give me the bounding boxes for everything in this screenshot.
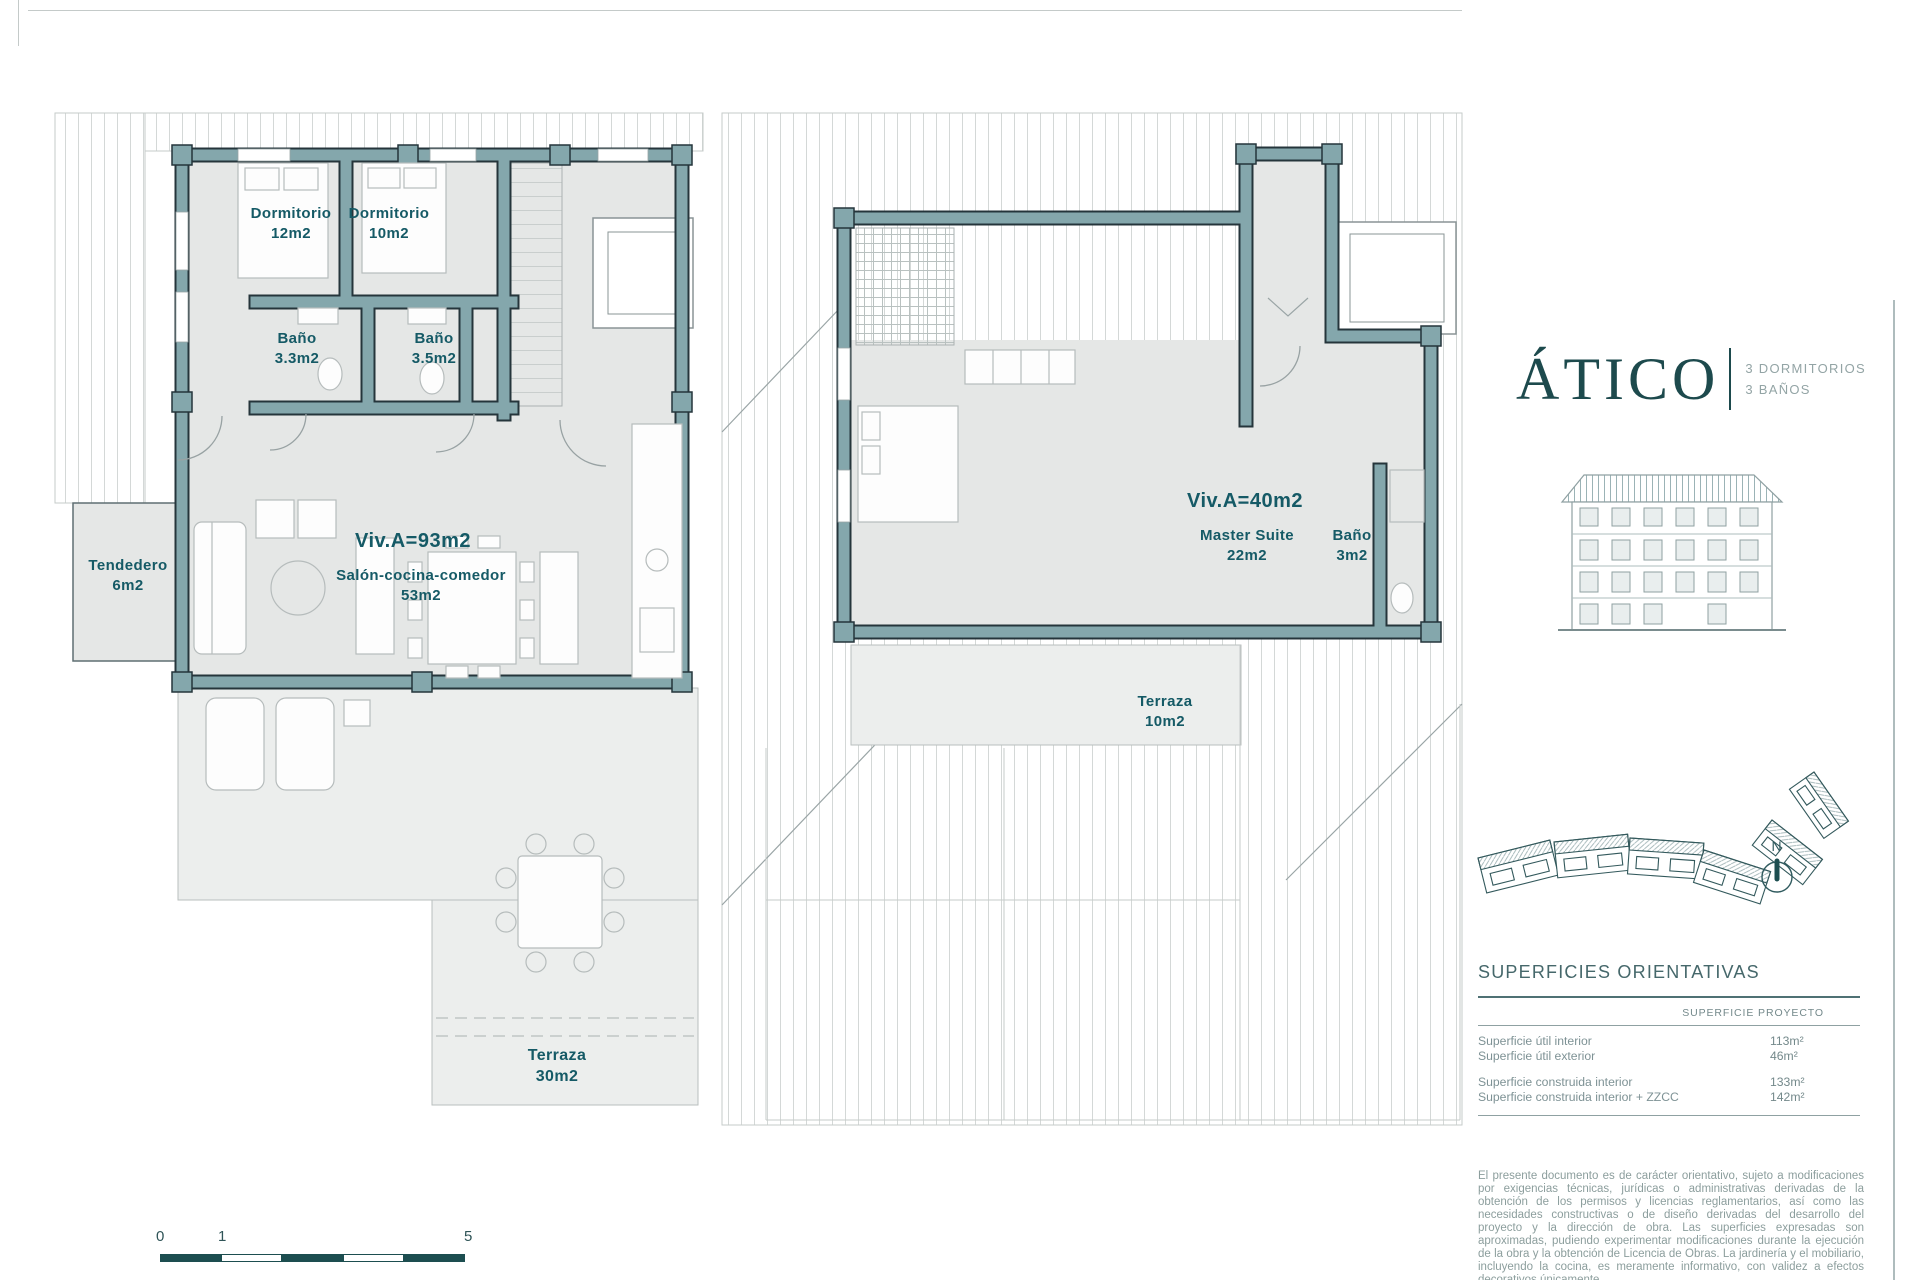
room-label-dormitorio-1: Dormitorio 12m2 (251, 204, 332, 243)
room-label-salon: Salón-cocina-comedor 53m2 (336, 566, 506, 605)
table-row: Superficie construida interior 133m² (1478, 1075, 1860, 1090)
site-plan-drawing (1470, 758, 1870, 928)
room-label-bano-3: Baño 3m2 (1332, 526, 1371, 565)
spec-bedrooms: 3 DORMITORIOS (1745, 361, 1866, 376)
stairs-upper (856, 228, 954, 345)
disclaimer-text: El presente documento es de carácter ori… (1478, 1170, 1864, 1280)
unit-area-label-upper: Viv.A=40m2 (1187, 488, 1303, 514)
building-elevation-drawing (1556, 462, 1788, 654)
table-group-construida: Superficie construida interior 133m² Sup… (1478, 1075, 1860, 1105)
table-group-util: Superficie útil interior 113m² Superfici… (1478, 1034, 1860, 1064)
title-divider (1729, 348, 1731, 410)
unit-area-label-main: Viv.A=93m2 (355, 528, 471, 554)
main-floor-plan (55, 113, 703, 1105)
room-label-terraza-30: Terraza 30m2 (528, 1046, 587, 1088)
room-label-bano-2: Baño 3.5m2 (412, 329, 457, 368)
table-row: Superficie útil interior 113m² (1478, 1034, 1860, 1049)
scale-bar: 0 1 5 (150, 1228, 480, 1270)
table-row: Superficie útil exterior 46m² (1478, 1049, 1860, 1064)
room-label-terraza-10: Terraza 10m2 (1137, 692, 1192, 731)
table-row: Superficie construida interior + ZZCC 14… (1478, 1090, 1860, 1105)
scale-label-5: 5 (464, 1228, 472, 1245)
table-rule-bottom (1478, 1115, 1860, 1116)
scale-label-1: 1 (218, 1228, 226, 1245)
surfaces-table: SUPERFICIES ORIENTATIVAS SUPERFICIE PROY… (1478, 962, 1860, 1116)
room-label-dormitorio-2: Dormitorio 10m2 (349, 204, 430, 243)
scale-bar-segments (160, 1254, 465, 1262)
room-label-master-suite: Master Suite 22m2 (1200, 526, 1294, 565)
scale-label-0: 0 (156, 1228, 164, 1245)
skylight-shaft (1338, 222, 1456, 334)
plan-type-title: ÁTICO (1516, 349, 1719, 409)
table-rule-header (1478, 1025, 1860, 1026)
room-label-bano-1: Baño 3.3m2 (275, 329, 320, 368)
surfaces-heading: SUPERFICIES ORIENTATIVAS (1478, 962, 1860, 983)
north-label: N (1771, 838, 1782, 854)
table-column-header: SUPERFICIE PROYECTO (1478, 998, 1860, 1025)
room-label-tendedero: Tendedero 6m2 (88, 556, 167, 595)
upper-floor-plan (722, 113, 1462, 1125)
title-specs: 3 DORMITORIOS 3 BAÑOS (1745, 361, 1866, 397)
spec-bathrooms: 3 BAÑOS (1745, 382, 1866, 397)
stairwell (509, 163, 562, 406)
title-block: ÁTICO 3 DORMITORIOS 3 BAÑOS (1516, 348, 1866, 410)
floorplan-sheet: Dormitorio 12m2 Dormitorio 10m2 Baño 3.3… (0, 0, 1920, 1280)
